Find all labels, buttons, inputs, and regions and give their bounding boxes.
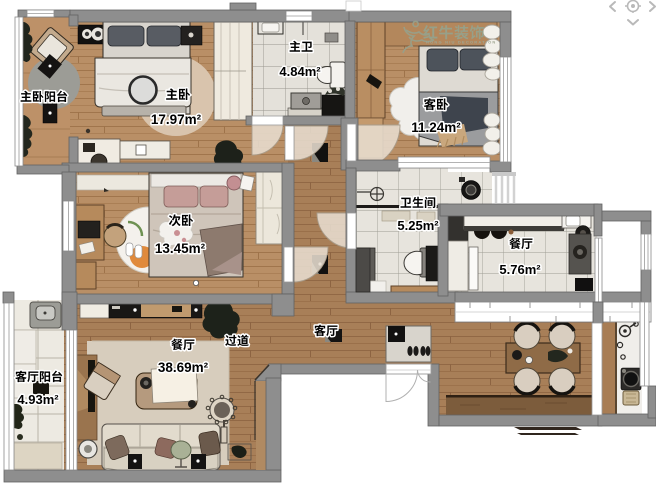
svg-text:5.25m²: 5.25m² [397, 218, 439, 233]
svg-text:HONG NIU DECORATION: HONG NIU DECORATION [426, 40, 497, 45]
svg-text:5.76m²: 5.76m² [499, 262, 541, 277]
svg-text:11.24m²: 11.24m² [411, 120, 461, 135]
svg-text:13.45m²: 13.45m² [155, 241, 206, 256]
svg-text:4.93m²: 4.93m² [17, 392, 59, 407]
svg-text:38.69m²: 38.69m² [158, 360, 209, 375]
svg-text:4.84m²: 4.84m² [279, 64, 321, 79]
svg-text:17.97m²: 17.97m² [151, 112, 202, 127]
